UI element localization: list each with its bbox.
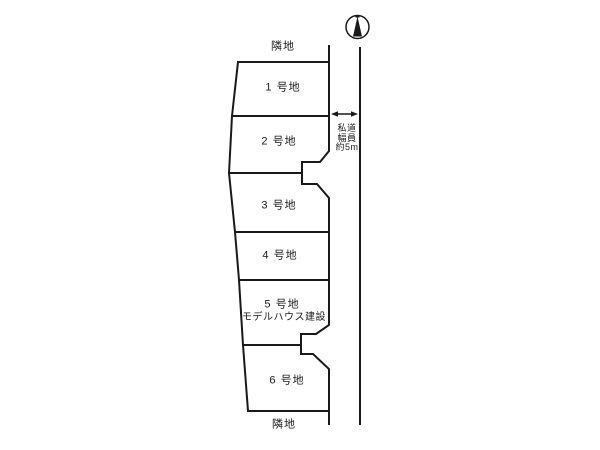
lot-5-model-house-note: モデルハウス建設 xyxy=(242,313,326,323)
parcel-left-boundary xyxy=(229,62,248,411)
parcel-outline xyxy=(229,46,329,424)
road-width-label-line3: 約5m xyxy=(335,143,358,153)
road-width-label: 私道 幅員 約5m xyxy=(335,124,358,153)
parcel-right-boundary xyxy=(301,46,329,424)
lot-5-label: 5 号地 xyxy=(264,300,299,311)
lot-6-label: 6 号地 xyxy=(269,376,304,387)
adjacent-land-bottom-label: 隣地 xyxy=(272,420,296,431)
lot-1-label: 1 号地 xyxy=(265,83,300,94)
lot-dividers xyxy=(229,116,329,345)
site-plan-diagram: 隣地 隣地 1 号地 2 号地 3 号地 4 号地 5 号地 モデルハウス建設 … xyxy=(0,0,600,450)
lot-2-label: 2 号地 xyxy=(261,137,296,148)
north-compass-icon xyxy=(346,15,369,39)
lot-3-label: 3 号地 xyxy=(261,201,296,212)
adjacent-land-top-label: 隣地 xyxy=(271,42,295,53)
lot-4-label: 4 号地 xyxy=(262,251,297,262)
road-width-arrow-icon xyxy=(331,111,358,117)
